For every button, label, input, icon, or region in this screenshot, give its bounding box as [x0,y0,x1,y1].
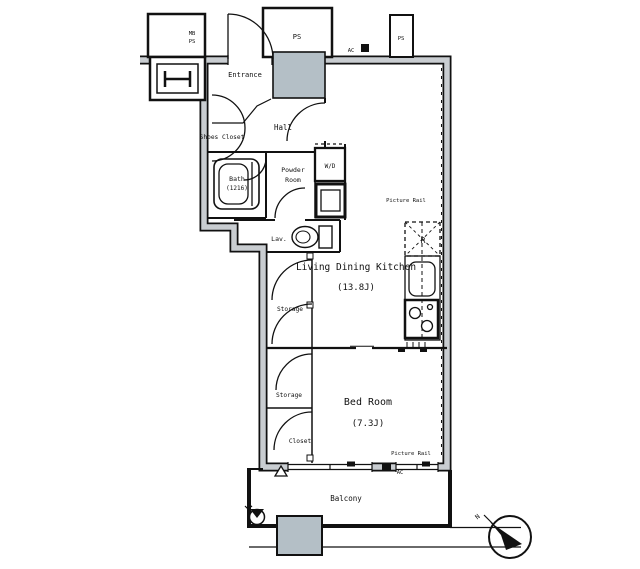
compass-icon: N [474,512,531,558]
hall-ldk-door-arc [287,103,325,141]
powder-room-label-2: Room [285,176,301,184]
pipe-space-top-label: PS [293,33,301,41]
storage-upper-label: Storage [277,306,303,313]
bedroom-windows [288,462,438,473]
ac-bottom-label: AC [397,470,404,476]
shoes-closet-label: Shoes Closet [200,134,245,141]
ldk-label: Living Dining Kitchen [296,262,416,273]
hydrant-box [150,57,205,100]
bathtub-icon [214,159,259,209]
shoes-closet-door-arc-2 [212,128,245,161]
powder-room-door-arc [275,188,305,218]
bath-size-label: (1216) [226,185,248,192]
stove-icon [405,300,438,338]
closet-label: Closet [289,438,312,445]
entrance-step-line [212,99,271,123]
kitchen-fixtures: R [405,222,440,347]
refrigerator-label: R [421,236,426,245]
washer-dryer-label: W/D [325,163,336,170]
picture-rail-top-label: Picture Rail [386,198,426,204]
bedroom-label: Bed Room [344,397,392,408]
storage-lower-label: Storage [276,392,302,399]
balcony-shaft-box [277,516,322,555]
linen-cabinet-box [316,184,345,217]
ldk-size-label: (13.8J) [337,283,375,293]
bedroom-size-label: (7.3J) [352,419,385,429]
floor-plan-drawing: MB PS PS PS AC [0,0,640,569]
compass-north-label: N [474,512,482,521]
ac-sleeve-top: AC [348,44,369,54]
pipe-space-top-box: PS [263,8,332,57]
hall-label: Hall [274,123,292,132]
entrance-label: Entrance [228,71,262,79]
ac-top-label: AC [348,48,355,54]
meter-box-label-2: PS [189,39,196,45]
toilet-icon [292,226,332,248]
powder-room-label-1: Powder [281,166,305,174]
pipe-space-right-label: PS [398,36,405,42]
picture-rail-bottom-label: Picture Rail [391,451,431,457]
bath-label: Bath [229,175,245,183]
washer-dryer-box: W/D [315,144,345,181]
balcony-label: Balcony [330,494,362,503]
storage-lower-door-arc [276,354,312,390]
pipe-space-right-box: PS [390,15,413,57]
entrance-shaft-box [273,52,325,98]
meter-box-label-1: MB [189,31,196,37]
lavatory-label: Lav. [271,235,287,243]
meter-box: MB PS [148,14,205,57]
floor-plan-page: MB PS PS PS AC [0,0,640,569]
